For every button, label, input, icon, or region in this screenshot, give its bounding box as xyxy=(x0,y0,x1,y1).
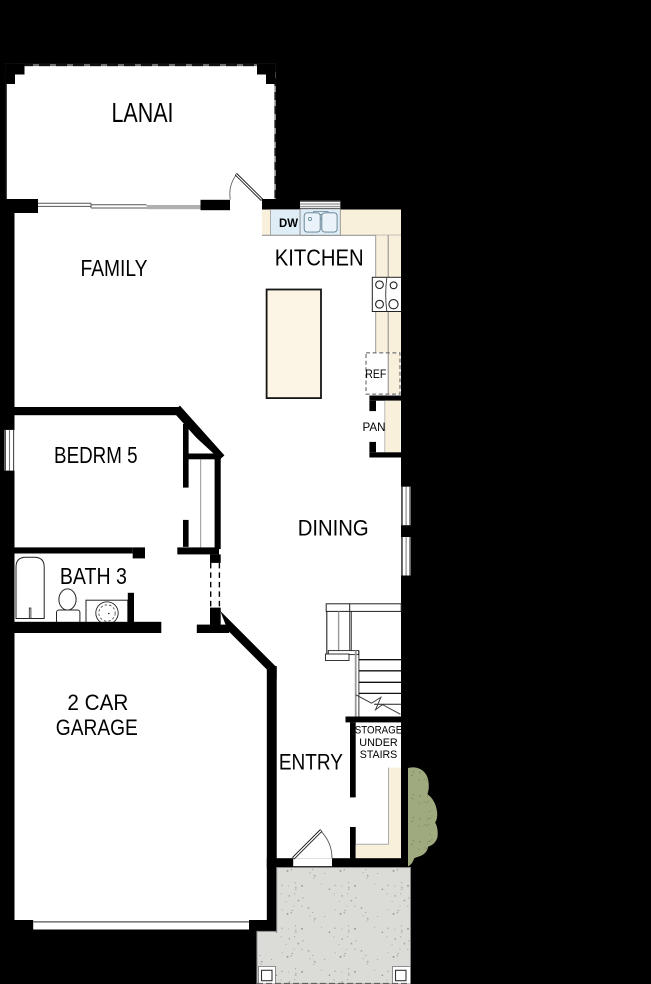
svg-text:DW: DW xyxy=(279,218,298,230)
svg-text:REF: REF xyxy=(365,369,386,381)
svg-text:STORAGE: STORAGE xyxy=(355,725,403,737)
svg-text:FAMILY: FAMILY xyxy=(81,255,148,281)
svg-text:2 CAR: 2 CAR xyxy=(67,690,128,715)
svg-text:KITCHEN: KITCHEN xyxy=(275,245,364,271)
svg-text:BEDRM 5: BEDRM 5 xyxy=(54,442,138,468)
svg-text:STAIRS: STAIRS xyxy=(360,749,398,761)
svg-text:UNDER: UNDER xyxy=(359,737,398,749)
svg-text:DINING: DINING xyxy=(298,516,369,541)
svg-text:LANAI: LANAI xyxy=(112,97,174,128)
svg-text:PAN: PAN xyxy=(363,422,386,434)
svg-text:GARAGE: GARAGE xyxy=(56,715,138,740)
svg-text:BATH 3: BATH 3 xyxy=(60,563,127,589)
svg-text:ENTRY: ENTRY xyxy=(279,750,343,775)
